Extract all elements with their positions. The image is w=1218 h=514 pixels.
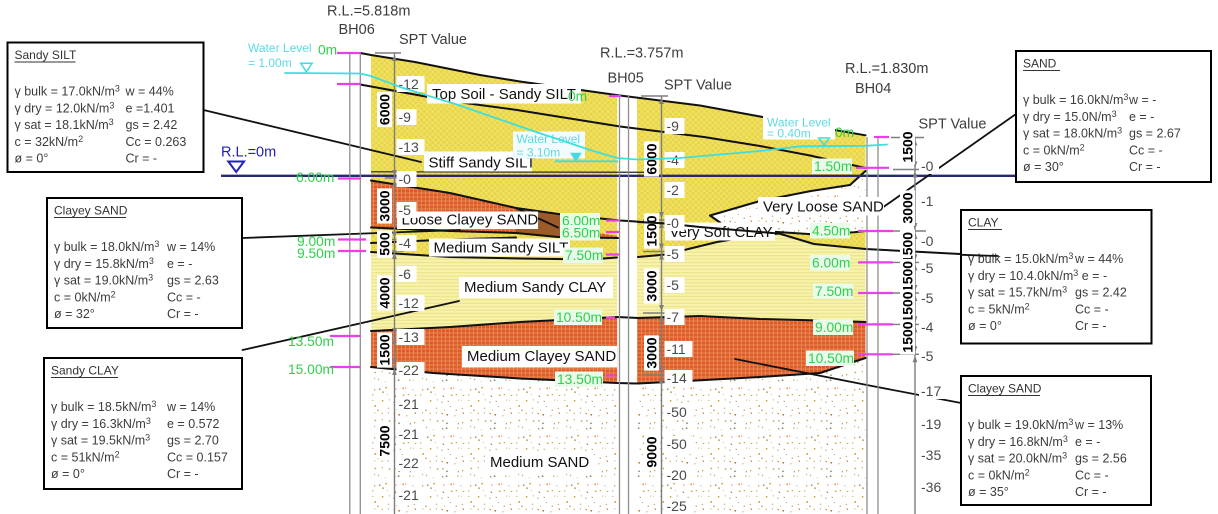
svg-text:15.00m: 15.00m xyxy=(288,362,334,377)
svg-text:γ bulk = 16.0kN/m3: γ bulk = 16.0kN/m3 xyxy=(1023,92,1128,107)
svg-text:= 1.00m: = 1.00m xyxy=(248,56,292,70)
svg-text:-0: -0 xyxy=(921,233,934,249)
svg-text:e = -: e = - xyxy=(1129,110,1154,124)
svg-text:-4: -4 xyxy=(667,152,680,168)
svg-text:SPT Value: SPT Value xyxy=(664,78,732,94)
svg-text:-36: -36 xyxy=(921,479,941,495)
svg-text:-4: -4 xyxy=(399,235,412,251)
svg-text:6.00m: 6.00m xyxy=(296,170,334,185)
svg-text:-14: -14 xyxy=(667,370,687,386)
svg-text:w = 13%: w = 13% xyxy=(1074,418,1123,432)
svg-text:ø = 35°: ø = 35° xyxy=(968,485,1009,499)
svg-text:-22: -22 xyxy=(399,362,419,378)
svg-text:1500: 1500 xyxy=(900,232,916,263)
svg-text:-0: -0 xyxy=(921,158,934,174)
svg-text:w = 14%: w = 14% xyxy=(166,240,215,254)
svg-text:Medium Sandy SILT: Medium Sandy SILT xyxy=(434,240,569,257)
svg-text:3000: 3000 xyxy=(644,270,660,301)
svg-text:13.50m: 13.50m xyxy=(288,334,334,349)
svg-text:Top Soil - Sandy SILT: Top Soil - Sandy SILT xyxy=(432,86,576,103)
svg-text:γ sat = 18.0kN/m3: γ sat = 18.0kN/m3 xyxy=(1023,126,1122,141)
svg-text:3000: 3000 xyxy=(377,190,393,221)
svg-text:Sandy CLAY: Sandy CLAY xyxy=(51,364,119,378)
svg-text:gs = 2.42: gs = 2.42 xyxy=(126,118,178,132)
svg-text:gs = 2.56: gs = 2.56 xyxy=(1075,452,1127,466)
svg-text:Cr = -: Cr = - xyxy=(167,467,199,481)
svg-text:w = 44%: w = 44% xyxy=(125,85,174,99)
svg-text:Cr = -: Cr = - xyxy=(1075,485,1107,499)
svg-text:c = 0kN/m2: c = 0kN/m2 xyxy=(968,467,1030,482)
svg-text:-21: -21 xyxy=(399,426,419,442)
svg-text:1500: 1500 xyxy=(900,131,916,162)
svg-text:6.50m: 6.50m xyxy=(562,226,600,241)
svg-text:-1: -1 xyxy=(921,193,934,209)
svg-text:-0: -0 xyxy=(399,171,412,187)
svg-text:1500: 1500 xyxy=(900,321,916,352)
svg-text:γ sat = 19.5kN/m3: γ sat = 19.5kN/m3 xyxy=(51,433,150,448)
svg-text:Clayey SAND: Clayey SAND xyxy=(54,204,128,218)
svg-text:SPT Value: SPT Value xyxy=(399,32,467,48)
svg-text:1500: 1500 xyxy=(644,215,660,246)
svg-text:Sandy SILT: Sandy SILT xyxy=(15,48,77,62)
svg-text:γ bulk = 19.0kN/m3: γ bulk = 19.0kN/m3 xyxy=(968,417,1073,432)
svg-text:-0: -0 xyxy=(667,215,680,231)
svg-text:3000: 3000 xyxy=(644,337,660,368)
svg-text:6.00m: 6.00m xyxy=(812,256,850,271)
svg-text:-4: -4 xyxy=(921,319,934,335)
svg-text:Cc = -: Cc = - xyxy=(167,290,201,304)
svg-text:9.00m: 9.00m xyxy=(815,320,853,335)
svg-text:Cc = 0.263: Cc = 0.263 xyxy=(126,135,187,149)
svg-text:10.50m: 10.50m xyxy=(556,310,602,325)
svg-text:-2: -2 xyxy=(667,182,680,198)
svg-text:BH04: BH04 xyxy=(855,81,891,97)
svg-text:4.50m: 4.50m xyxy=(812,224,850,239)
svg-text:γ bulk = 17.0kN/m3: γ bulk = 17.0kN/m3 xyxy=(15,84,120,99)
svg-text:γ dry = 16.3kN/m3: γ dry = 16.3kN/m3 xyxy=(51,416,151,431)
svg-text:Clayey SAND: Clayey SAND xyxy=(968,382,1042,396)
svg-text:Cc = -: Cc = - xyxy=(1075,302,1109,316)
svg-text:-13: -13 xyxy=(399,329,419,345)
svg-text:0m: 0m xyxy=(835,125,854,140)
svg-text:ø = 0°: ø = 0° xyxy=(51,467,85,481)
svg-text:ø = 0°: ø = 0° xyxy=(968,319,1002,333)
svg-text:-21: -21 xyxy=(399,396,419,412)
svg-text:Very Loose SAND: Very Loose SAND xyxy=(763,199,884,216)
svg-text:-21: -21 xyxy=(399,487,419,503)
svg-text:Cr = -: Cr = - xyxy=(1075,319,1107,333)
svg-text:-5: -5 xyxy=(921,260,934,276)
svg-text:7.50m: 7.50m xyxy=(565,248,603,263)
svg-text:-35: -35 xyxy=(921,447,941,463)
svg-text:-50: -50 xyxy=(667,436,687,452)
svg-text:e =1.401: e =1.401 xyxy=(126,101,175,115)
svg-text:-19: -19 xyxy=(921,416,941,432)
svg-text:7.50m: 7.50m xyxy=(815,284,853,299)
svg-text:1500: 1500 xyxy=(900,261,916,292)
svg-text:Cr = -: Cr = - xyxy=(1129,160,1161,174)
svg-text:1500: 1500 xyxy=(377,334,393,365)
svg-text:= 0.40m: = 0.40m xyxy=(767,127,811,141)
svg-text:-5: -5 xyxy=(667,277,680,293)
svg-text:Medium Sandy CLAY: Medium Sandy CLAY xyxy=(464,279,606,296)
svg-text:R.L.=1.830m: R.L.=1.830m xyxy=(845,61,928,77)
svg-text:e = -: e = - xyxy=(1075,435,1100,449)
svg-text:γ dry = 15.8kN/m3: γ dry = 15.8kN/m3 xyxy=(54,256,154,271)
svg-text:3000: 3000 xyxy=(900,192,916,223)
svg-text:w = 44%: w = 44% xyxy=(1074,252,1123,266)
svg-text:c = 5kN/m2: c = 5kN/m2 xyxy=(968,301,1030,316)
svg-text:-25: -25 xyxy=(667,498,687,514)
svg-text:Cr = -: Cr = - xyxy=(126,152,158,166)
svg-text:Cr = -: Cr = - xyxy=(167,307,199,321)
svg-text:1500: 1500 xyxy=(900,291,916,322)
svg-text:R.L.=0m: R.L.=0m xyxy=(221,145,276,161)
svg-text:0m: 0m xyxy=(318,43,337,58)
svg-text:-5: -5 xyxy=(921,290,934,306)
svg-text:-20: -20 xyxy=(667,467,687,483)
svg-text:γ sat = 15.7kN/m3: γ sat = 15.7kN/m3 xyxy=(968,285,1067,300)
svg-text:c = 32kN/m2: c = 32kN/m2 xyxy=(15,134,84,149)
svg-text:-6: -6 xyxy=(399,266,412,282)
svg-text:γ dry = 10.4.0kN/m3 e = -: γ dry = 10.4.0kN/m3 e = - xyxy=(968,268,1107,283)
svg-text:ø = 0°: ø = 0° xyxy=(15,152,49,166)
svg-text:-5: -5 xyxy=(667,246,680,262)
svg-text:-5: -5 xyxy=(921,348,934,364)
svg-text:0m: 0m xyxy=(568,89,587,104)
svg-text:Medium Clayey SAND: Medium Clayey SAND xyxy=(467,348,616,365)
svg-text:-13: -13 xyxy=(399,139,419,155)
svg-text:γ dry = 15.0N/m3: γ dry = 15.0N/m3 xyxy=(1023,109,1117,124)
svg-text:gs = 2.67: gs = 2.67 xyxy=(1129,127,1181,141)
svg-text:Cc = -: Cc = - xyxy=(1075,468,1109,482)
svg-text:γ bulk = 18.0kN/m3: γ bulk = 18.0kN/m3 xyxy=(54,239,159,254)
svg-text:e = -: e = - xyxy=(167,257,192,271)
svg-text:13.50m: 13.50m xyxy=(557,372,603,387)
svg-text:-7: -7 xyxy=(667,309,680,325)
svg-text:SAND: SAND xyxy=(1023,57,1057,71)
svg-text:4000: 4000 xyxy=(377,277,393,308)
svg-text:gs = 2.42: gs = 2.42 xyxy=(1075,286,1127,300)
svg-text:c = 0kN/m2: c = 0kN/m2 xyxy=(54,289,116,304)
svg-text:γ dry = 16.8kN/m3: γ dry = 16.8kN/m3 xyxy=(968,434,1068,449)
svg-text:SPT Value: SPT Value xyxy=(919,117,987,133)
svg-text:Cc = 0.157: Cc = 0.157 xyxy=(167,450,228,464)
svg-text:w = 14%: w = 14% xyxy=(166,400,215,414)
svg-text:BH06: BH06 xyxy=(339,22,375,38)
svg-text:γ dry = 12.0kN/m3: γ dry = 12.0kN/m3 xyxy=(15,100,115,115)
svg-text:Water Level: Water Level xyxy=(248,41,312,55)
svg-text:c = 51kN/m2: c = 51kN/m2 xyxy=(51,449,120,464)
svg-text:γ sat = 20.0kN/m3: γ sat = 20.0kN/m3 xyxy=(968,451,1067,466)
svg-text:10.50m: 10.50m xyxy=(808,351,854,366)
svg-text:-22: -22 xyxy=(399,455,419,471)
svg-text:9.50m: 9.50m xyxy=(297,246,335,261)
svg-text:-12: -12 xyxy=(399,295,419,311)
svg-text:-9: -9 xyxy=(399,109,412,125)
svg-text:R.L.=3.757m: R.L.=3.757m xyxy=(600,46,683,62)
svg-text:-11: -11 xyxy=(667,341,686,357)
svg-text:ø = 32°: ø = 32° xyxy=(54,307,95,321)
svg-text:ø = 30°: ø = 30° xyxy=(1023,160,1064,174)
svg-text:1.50m: 1.50m xyxy=(814,159,852,174)
svg-text:9000: 9000 xyxy=(644,436,660,467)
svg-text:Cc = -: Cc = - xyxy=(1129,143,1163,157)
svg-text:-50: -50 xyxy=(667,404,687,420)
svg-text:γ sat = 18.1kN/m3: γ sat = 18.1kN/m3 xyxy=(15,117,114,132)
svg-text:gs = 2.63: gs = 2.63 xyxy=(167,274,219,288)
svg-text:BH05: BH05 xyxy=(608,71,644,87)
svg-text:Loose Clayey SAND: Loose Clayey SAND xyxy=(402,212,539,229)
svg-text:-9: -9 xyxy=(667,118,680,134)
svg-text:CLAY: CLAY xyxy=(968,216,998,230)
svg-text:w = -: w = - xyxy=(1128,93,1156,107)
svg-text:-5: -5 xyxy=(399,202,412,218)
svg-text:gs = 2.70: gs = 2.70 xyxy=(167,434,219,448)
svg-text:γ bulk = 18.5kN/m3: γ bulk = 18.5kN/m3 xyxy=(51,399,156,414)
svg-text:e = 0.572: e = 0.572 xyxy=(167,417,220,431)
svg-text:c = 0kN/m2: c = 0kN/m2 xyxy=(1023,142,1085,157)
svg-text:γ sat = 19.0kN/m3: γ sat = 19.0kN/m3 xyxy=(54,273,153,288)
svg-text:Medium SAND: Medium SAND xyxy=(490,454,589,471)
svg-text:-17: -17 xyxy=(921,383,941,399)
svg-text:500: 500 xyxy=(377,232,393,256)
svg-text:= 3.10m: = 3.10m xyxy=(517,146,561,160)
svg-text:7500: 7500 xyxy=(377,425,393,456)
svg-text:γ bulk = 15.0kN/m3: γ bulk = 15.0kN/m3 xyxy=(968,251,1073,266)
svg-text:R.L.=5.818m: R.L.=5.818m xyxy=(327,4,410,20)
svg-text:6000: 6000 xyxy=(377,94,393,125)
